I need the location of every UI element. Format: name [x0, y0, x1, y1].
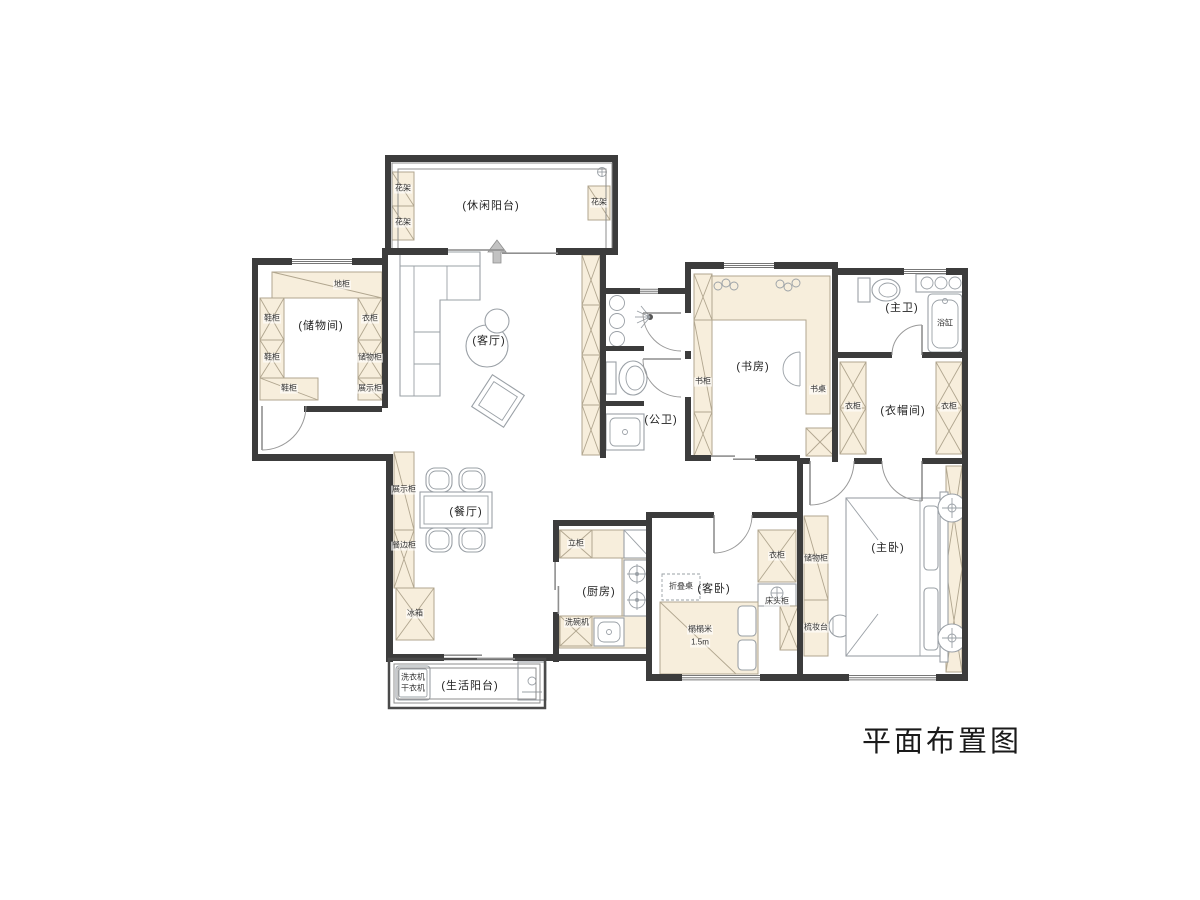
master-bedroom-furniture — [804, 466, 966, 672]
label-bathtub: 浴缸 — [936, 320, 954, 329]
room-label-closet: (衣帽间) — [879, 405, 926, 417]
label-wardrobe: 衣柜 — [940, 403, 958, 412]
label-floor-cabinet: 地柜 — [333, 281, 351, 290]
room-label-living-room: (客厅) — [471, 335, 506, 347]
page-title: 平面布置图 — [862, 718, 1022, 760]
label-flower-rack: 花架 — [394, 219, 412, 228]
label-sideboard: 餐边柜 — [391, 542, 417, 551]
label-washer: 洗衣机 — [400, 674, 426, 683]
tv-cabinet — [582, 255, 600, 455]
label-wardrobe: 衣柜 — [844, 403, 862, 412]
living-room-furniture — [400, 240, 524, 427]
label-dishwasher: 洗碗机 — [564, 619, 590, 628]
label-folding-table: 折叠桌 — [668, 583, 694, 592]
label-shoe-cabinet: 鞋柜 — [263, 315, 281, 324]
label-storage-cabinet: 储物柜 — [357, 354, 383, 363]
room-label-master-bedroom: (主卧) — [870, 542, 905, 554]
room-label-study: (书房) — [735, 361, 770, 373]
room-label-storage-room: (储物间) — [297, 320, 344, 332]
storage-room-cabinets — [260, 272, 382, 400]
room-label-dining-room: (餐厅) — [448, 506, 483, 518]
label-display-cabinet: 展示柜 — [391, 486, 417, 495]
label-shoe-cabinet: 鞋柜 — [263, 354, 281, 363]
room-label-leisure-balcony: (休闲阳台) — [461, 200, 520, 212]
room-label-public-bath: (公卫) — [643, 414, 678, 426]
entry-arrow-icon — [488, 240, 506, 263]
label-wardrobe: 衣柜 — [361, 315, 379, 324]
room-label-life-balcony: (生活阳台) — [440, 680, 499, 692]
label-nightstand: 床头柜 — [764, 598, 790, 607]
label-dresser: 梳妆台 — [803, 624, 829, 633]
room-label-guest-bedroom: (客卧) — [696, 583, 731, 595]
floor-plan-page: (休闲阳台) (储物间) (客厅) (公卫) (书房) (主卫) (衣帽间) (… — [0, 0, 1200, 900]
label-shoe-cabinet: 鞋柜 — [280, 385, 298, 394]
label-dryer: 干衣机 — [400, 685, 426, 694]
label-tatami-size: 1.5m — [690, 639, 710, 648]
label-tatami: 榻榻米 — [687, 626, 713, 635]
label-flower-rack: 花架 — [394, 185, 412, 194]
label-flower-rack: 花架 — [590, 199, 608, 208]
label-bookcase: 书柜 — [694, 378, 712, 387]
label-fridge: 冰箱 — [406, 610, 424, 619]
room-label-master-bath: (主卫) — [884, 302, 919, 314]
floor-plan-drawing — [0, 0, 1200, 900]
label-storage-cabinet: 储物柜 — [803, 555, 829, 564]
label-desk: 书桌 — [809, 386, 827, 395]
label-display-cabinet: 展示柜 — [357, 385, 383, 394]
room-label-kitchen: (厨房) — [581, 586, 616, 598]
label-tall-cabinet: 立柜 — [567, 540, 585, 549]
label-wardrobe: 衣柜 — [768, 552, 786, 561]
